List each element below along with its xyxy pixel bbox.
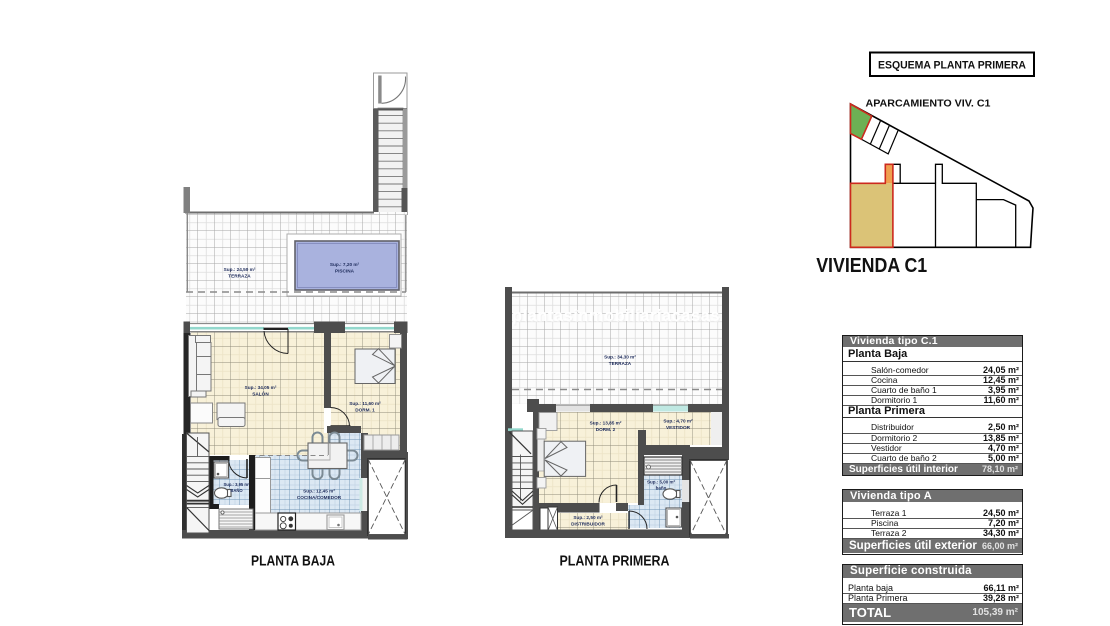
svg-text:ESQUEMA PLANTA PRIMERA: ESQUEMA PLANTA PRIMERA: [878, 60, 1026, 72]
svg-text:Sup.: 4,70 m²: Sup.: 4,70 m²: [663, 419, 693, 424]
svg-text:COCINA/COMEDOR: COCINA/COMEDOR: [297, 495, 342, 500]
svg-text:APARCAMIENTO VIV. C1: APARCAMIENTO VIV. C1: [866, 98, 991, 110]
svg-text:Sup.: 34,30 m²: Sup.: 34,30 m²: [604, 355, 636, 360]
svg-text:PLANTA PRIMERA: PLANTA PRIMERA: [560, 554, 670, 570]
svg-text:Sup.: 24,50 m²: Sup.: 24,50 m²: [224, 267, 256, 272]
svg-text:PLANTA BAJA: PLANTA BAJA: [251, 554, 335, 570]
svg-text:DORM. 1: DORM. 1: [355, 408, 375, 413]
svg-text:DORM. 2: DORM. 2: [596, 427, 616, 432]
svg-text:Sup.: 34,05 m²: Sup.: 34,05 m²: [245, 385, 277, 390]
svg-text:DISTRIBUIDOR: DISTRIBUIDOR: [571, 522, 605, 527]
svg-text:Sup.: 12,45 m²: Sup.: 12,45 m²: [303, 489, 335, 494]
svg-text:Sup.: 7,20 m²: Sup.: 7,20 m²: [330, 262, 360, 267]
svg-text:Sup.: 3,95 m²: Sup.: 3,95 m²: [223, 482, 250, 487]
svg-text:plantasinmobiliariacasas: plantasinmobiliariacasas: [512, 306, 720, 325]
svg-text:PISCINA: PISCINA: [335, 269, 355, 274]
svg-text:SALÓN: SALÓN: [252, 390, 269, 397]
svg-text:VIVIENDA C1: VIVIENDA C1: [816, 255, 927, 277]
svg-text:Sup.: 2,50 m²: Sup.: 2,50 m²: [573, 515, 603, 520]
svg-text:Sup.: 13,85 m²: Sup.: 13,85 m²: [590, 421, 622, 426]
svg-text:Sup.: 5,00 m²: Sup.: 5,00 m²: [647, 480, 676, 485]
svg-text:BAÑO: BAÑO: [230, 488, 243, 493]
svg-text:VESTIDOR: VESTIDOR: [666, 425, 691, 430]
svg-text:TERRAZA: TERRAZA: [228, 274, 251, 279]
svg-text:TERRAZA: TERRAZA: [609, 361, 632, 366]
svg-text:Sup.: 11,60 m²: Sup.: 11,60 m²: [349, 401, 381, 406]
